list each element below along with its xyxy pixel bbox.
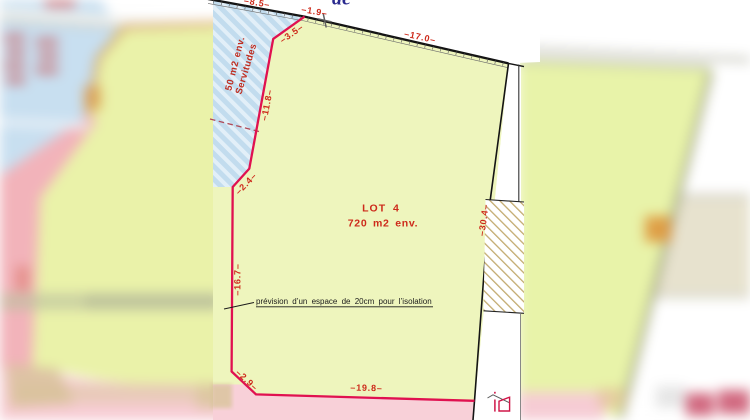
svg-text:de: de (332, 0, 351, 10)
svg-text:–19.8–: –19.8– (350, 382, 383, 393)
svg-text:LOT 4: LOT 4 (362, 203, 400, 215)
svg-text:–16.7–: –16.7– (232, 263, 242, 295)
svg-text:prévision d’un espace de 2: prévision d’un espace de 20cm pour l’iso… (256, 297, 432, 306)
svg-text:720 m2 env.: 720 m2 env. (348, 218, 418, 230)
